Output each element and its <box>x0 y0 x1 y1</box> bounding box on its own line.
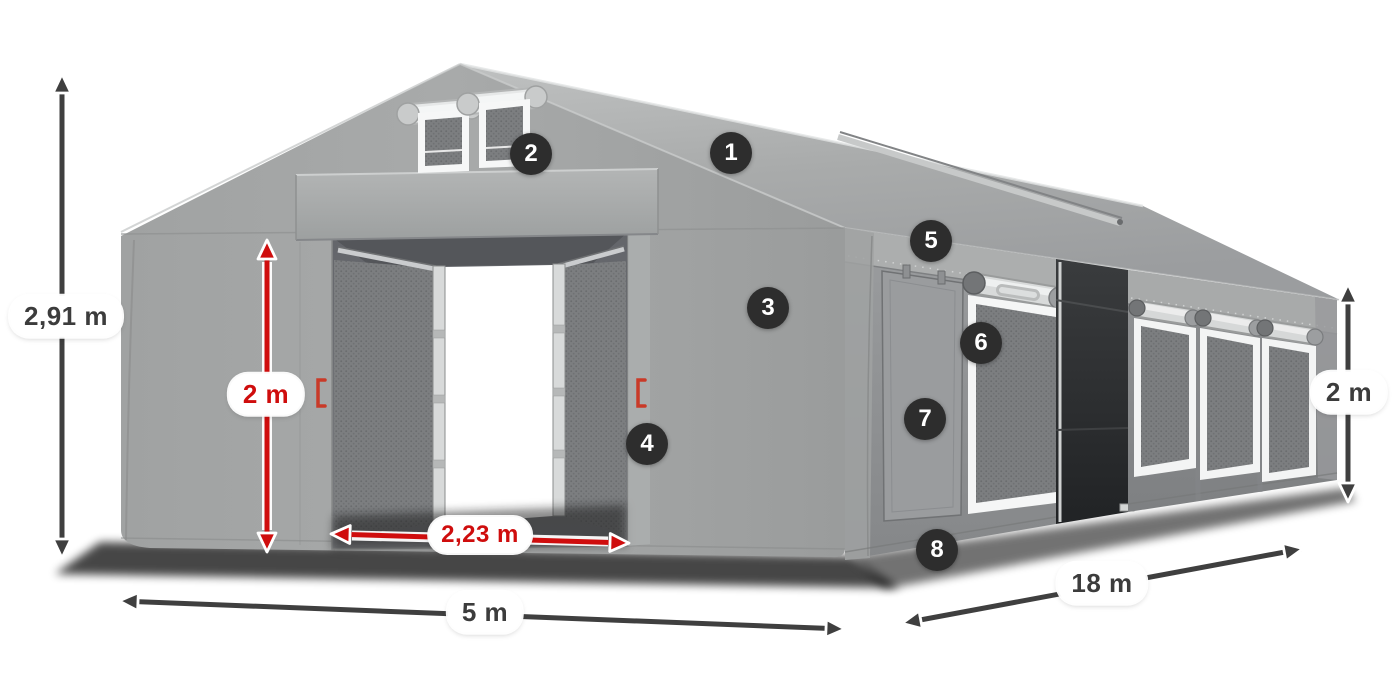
callout-badge-7[interactable]: 7 <box>904 398 946 440</box>
side-height-label: 2 m <box>1312 372 1386 413</box>
side-wall-front-module <box>845 228 1071 560</box>
callout-badge-8[interactable]: 8 <box>916 529 958 571</box>
callout-badge-1[interactable]: 1 <box>710 132 752 174</box>
callout-badge-5[interactable]: 5 <box>910 220 952 262</box>
front-entrance <box>318 232 650 549</box>
callout-badge-4[interactable]: 4 <box>626 423 668 465</box>
callout-badge-2[interactable]: 2 <box>510 133 552 175</box>
side-wall-rear-module <box>1128 270 1337 512</box>
entrance-width-label: 2,23 m <box>429 517 531 553</box>
product-diagram: 2,91 m 2 m 2,23 m 5 m 18 m 2 m 1 2 3 4 5… <box>0 0 1400 700</box>
width-label: 5 m <box>448 592 522 633</box>
entrance-header-band <box>296 169 658 240</box>
total-height-label: 2,91 m <box>10 296 122 337</box>
callout-badge-3[interactable]: 3 <box>747 287 789 329</box>
open-side-section <box>1056 259 1134 524</box>
callout-badge-6[interactable]: 6 <box>960 322 1002 364</box>
length-label: 18 m <box>1057 563 1146 604</box>
tent-illustration <box>0 0 1400 700</box>
entrance-height-label: 2 m <box>229 374 303 415</box>
